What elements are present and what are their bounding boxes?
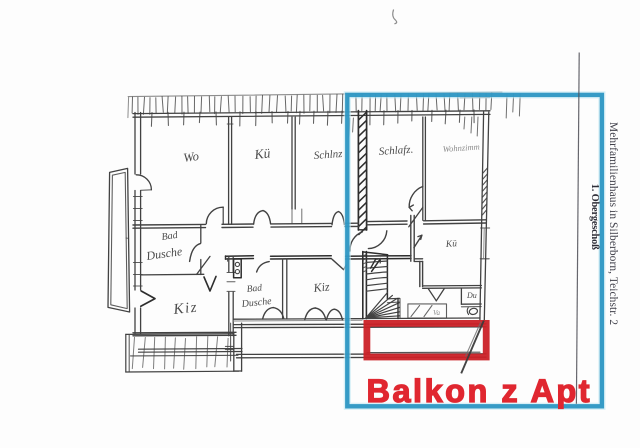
svg-text:Dusche: Dusche	[144, 244, 183, 263]
svg-text:Wohnzimm: Wohnzimm	[442, 141, 480, 154]
svg-text:Kü: Kü	[445, 239, 458, 250]
svg-text:Kü: Kü	[253, 145, 271, 162]
svg-text:1. Obergeschoß: 1. Obergeschoß	[589, 184, 600, 250]
svg-text:Mehrfamilienhaus in Silberborn: Mehrfamilienhaus in Silberborn, Teichstr…	[607, 122, 619, 325]
svg-text:Du: Du	[466, 291, 477, 300]
svg-text:Dusche: Dusche	[240, 296, 273, 310]
svg-text:Balkon z Apt: Balkon z Apt	[367, 373, 593, 409]
svg-text:Kiz: Kiz	[312, 279, 331, 295]
svg-text:Bad: Bad	[161, 230, 179, 243]
svg-text:Va: Va	[433, 309, 441, 317]
svg-text:Wo: Wo	[182, 149, 199, 165]
svg-text:Schlnz: Schlnz	[313, 148, 343, 162]
svg-text:Schlafz.: Schlafz.	[378, 144, 413, 158]
svg-text:Bad: Bad	[246, 283, 263, 295]
svg-text:Kiz: Kiz	[172, 300, 199, 319]
